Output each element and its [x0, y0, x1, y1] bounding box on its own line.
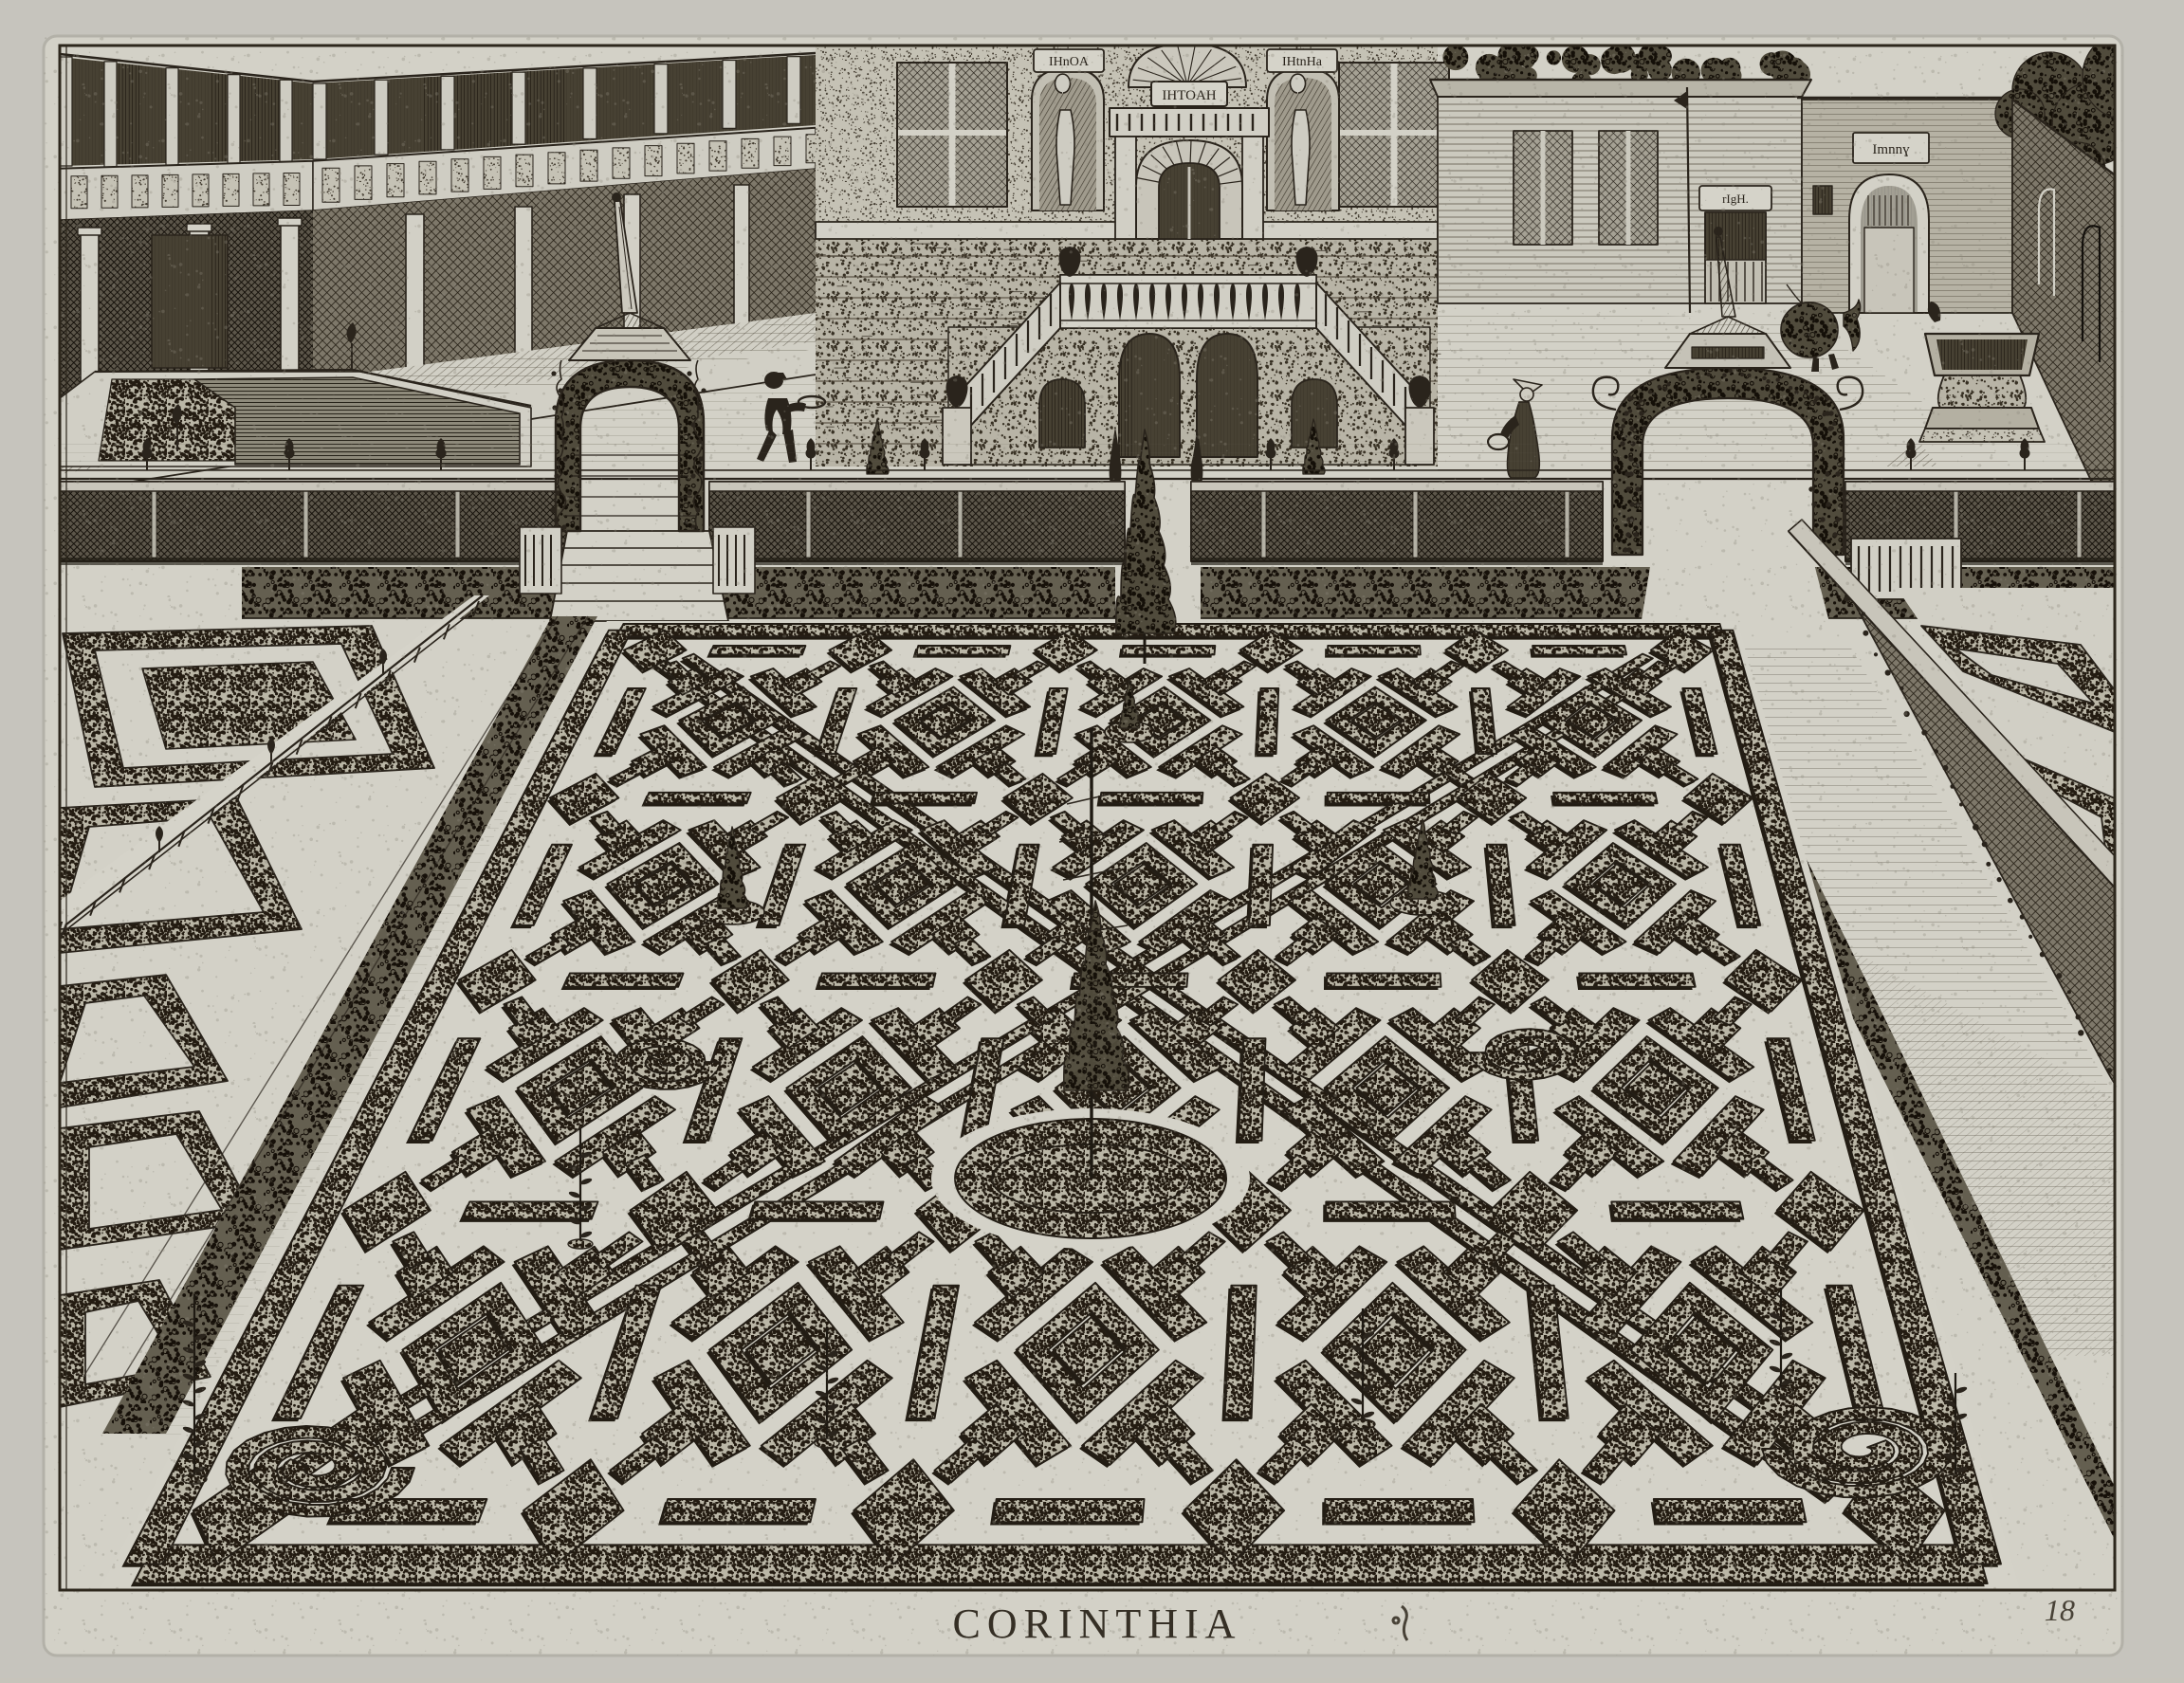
svg-text:18: 18: [2045, 1593, 2075, 1627]
svg-text:CORINTHIA: CORINTHIA: [953, 1601, 1242, 1647]
